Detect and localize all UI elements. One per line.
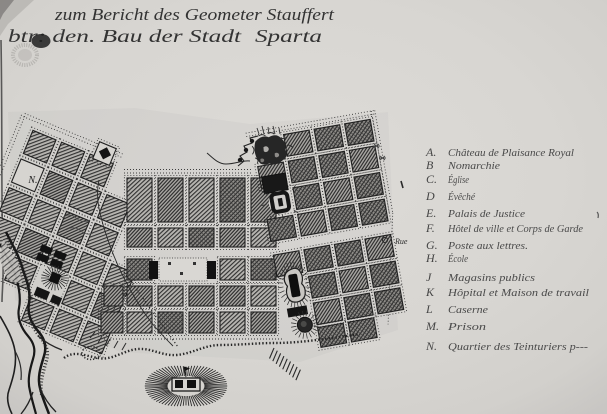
svg-text:Prison: Prison (447, 321, 486, 333)
svg-text:zum Bericht des Geometer Stauf: zum Bericht des Geometer Stauffert (54, 5, 335, 24)
svg-text:N.: N. (425, 339, 437, 353)
svg-text:M.: M. (425, 319, 439, 333)
svg-text:Magasins publics: Magasins publics (447, 272, 535, 284)
svg-text:C.: C. (426, 172, 437, 186)
svg-text:G.: G. (426, 238, 438, 252)
svg-text:Quartier des Teinturiers p---: Quartier des Teinturiers p--- (448, 341, 588, 353)
svg-text:Hôpital et Maison de travail: Hôpital et Maison de travail (447, 287, 589, 299)
svg-text:L: L (425, 302, 433, 316)
svg-text:B: B (426, 158, 434, 172)
svg-text:A.: A. (425, 145, 436, 159)
svg-text:École: École (447, 253, 468, 265)
svg-text:Évêché: Évêché (447, 191, 476, 203)
svg-text:D: D (425, 189, 435, 203)
svg-text:Rue: Rue (394, 237, 408, 246)
svg-text:H.: H. (425, 251, 438, 265)
svg-text:N.: N. (27, 175, 37, 186)
svg-text:Hôtel de ville et Corps de Gar: Hôtel de ville et Corps de Garde (447, 223, 583, 235)
svg-text:Sparta: Sparta (255, 26, 322, 46)
svg-text:K: K (425, 285, 435, 299)
svg-text:Poste aux lettres.: Poste aux lettres. (447, 240, 528, 252)
svg-text:Château de Plaisance Royal: Château de Plaisance Royal (448, 147, 574, 159)
svg-text:Palais de Justice: Palais de Justice (447, 208, 525, 220)
svg-text:Église: Église (447, 174, 469, 186)
svg-text:Caserne: Caserne (448, 304, 488, 316)
svg-text:J: J (426, 270, 432, 284)
svg-text:F.: F. (425, 221, 435, 235)
svg-text:Nomarchie: Nomarchie (447, 160, 500, 172)
svg-text:E.: E. (425, 206, 436, 220)
